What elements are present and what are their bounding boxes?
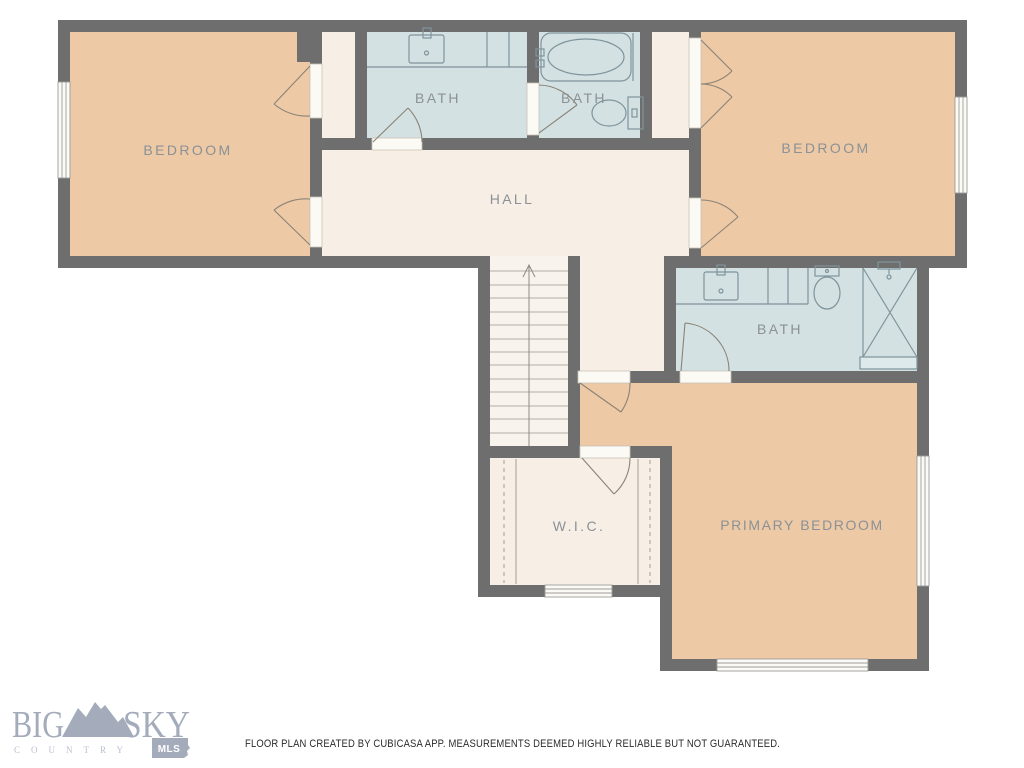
door-opening (580, 446, 630, 458)
mls-badge: MLS (152, 738, 190, 758)
room-label-bedroom-right: BEDROOM (781, 140, 870, 156)
room-fills (70, 32, 955, 659)
hall-niche-right-floor (652, 32, 689, 138)
hall-extension-floor (580, 256, 664, 371)
window (955, 97, 967, 193)
room-label-hall: HALL (490, 191, 535, 207)
door-opening (310, 197, 322, 247)
door-opening (372, 138, 422, 150)
logo-tagline-country: COUNTRY (14, 745, 134, 755)
door-opening (689, 198, 701, 248)
window (58, 82, 70, 178)
room-label-bath-primary: BATH (757, 321, 803, 337)
window (545, 585, 612, 597)
hall-niche-left-floor (322, 32, 355, 138)
door-opening (527, 83, 539, 135)
room-label-wic: W.I.C. (553, 518, 606, 534)
logo-word-big: BIG (12, 704, 64, 746)
room-label-bath-upper-left: BATH (415, 90, 461, 106)
floor-plan-drawing: BEDROOM BATH BATH BEDROOM HALL BATH W.I.… (0, 0, 1024, 768)
door-opening (689, 38, 701, 128)
floor-plan-page: BEDROOM BATH BATH BEDROOM HALL BATH W.I.… (0, 0, 1024, 768)
big-sky-mls-logo: BIG SKY COUNTRY MLS (12, 702, 190, 758)
bath-upper-left-floor (367, 32, 527, 138)
door-opening (578, 371, 630, 383)
room-label-primary-bedroom: PRIMARY BEDROOM (720, 517, 884, 533)
door-opening (310, 64, 322, 118)
disclaimer-text: FLOOR PLAN CREATED BY CUBICASA APP. MEAS… (245, 738, 780, 750)
bath-primary-floor (676, 268, 917, 371)
door-opening (680, 371, 731, 383)
mls-badge-text: MLS (158, 744, 181, 755)
room-label-bedroom-left: BEDROOM (143, 142, 232, 158)
room-label-bath-upper-right: BATH (561, 90, 607, 106)
window (717, 659, 868, 671)
window (917, 456, 929, 586)
